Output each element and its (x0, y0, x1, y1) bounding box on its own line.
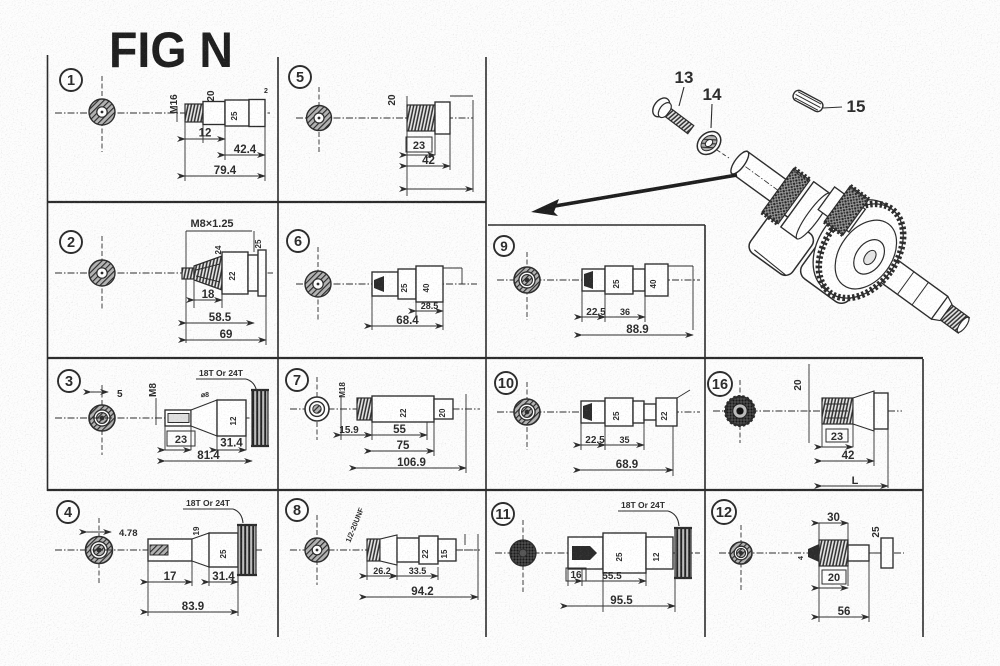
svg-text:36: 36 (620, 307, 630, 317)
svg-text:11: 11 (495, 507, 510, 523)
svg-text:31.4: 31.4 (220, 438, 243, 450)
svg-text:42: 42 (422, 155, 435, 167)
svg-text:25: 25 (615, 552, 624, 561)
svg-text:25: 25 (230, 111, 239, 120)
svg-text:31.4: 31.4 (212, 571, 235, 583)
svg-text:4: 4 (64, 505, 72, 521)
svg-text:13: 13 (675, 68, 694, 87)
svg-text:25: 25 (612, 279, 621, 288)
svg-text:6: 6 (294, 234, 302, 250)
svg-text:22.5: 22.5 (585, 435, 605, 446)
svg-text:28.5: 28.5 (421, 301, 439, 311)
svg-text:42.4: 42.4 (234, 144, 257, 156)
svg-text:1: 1 (67, 73, 75, 89)
svg-text:68.4: 68.4 (396, 315, 419, 327)
svg-text:16: 16 (712, 377, 728, 393)
svg-text:68.9: 68.9 (616, 459, 638, 471)
svg-text:35: 35 (619, 435, 629, 445)
svg-text:69: 69 (220, 329, 233, 341)
svg-text:9: 9 (500, 239, 508, 254)
svg-text:M16: M16 (169, 94, 180, 114)
svg-text:10: 10 (498, 376, 514, 392)
svg-text:26.2: 26.2 (373, 566, 391, 576)
svg-text:5: 5 (117, 389, 123, 400)
svg-text:15: 15 (440, 549, 449, 558)
svg-text:19: 19 (192, 526, 201, 535)
svg-text:⌀8: ⌀8 (201, 392, 209, 399)
svg-text:2: 2 (264, 88, 268, 95)
svg-text:17: 17 (164, 571, 177, 583)
svg-text:8: 8 (293, 503, 301, 519)
svg-text:55: 55 (393, 424, 406, 436)
svg-text:22: 22 (660, 411, 669, 420)
svg-text:25: 25 (254, 239, 263, 248)
svg-text:25: 25 (219, 549, 228, 558)
svg-text:25: 25 (871, 526, 882, 538)
svg-text:12: 12 (652, 552, 661, 561)
svg-text:12: 12 (229, 416, 238, 425)
svg-text:4.78: 4.78 (119, 528, 138, 539)
svg-text:5: 5 (296, 70, 304, 86)
svg-text:23: 23 (175, 434, 187, 446)
svg-text:FIG N: FIG N (109, 22, 233, 78)
svg-text:12: 12 (199, 128, 212, 140)
svg-text:55.5: 55.5 (602, 571, 622, 582)
svg-text:15.9: 15.9 (339, 425, 359, 436)
svg-text:20: 20 (438, 408, 447, 417)
svg-text:22: 22 (421, 549, 430, 558)
svg-text:24: 24 (214, 245, 223, 254)
svg-text:30: 30 (827, 512, 840, 524)
svg-text:83.9: 83.9 (182, 601, 204, 613)
svg-text:18T Or 24T: 18T Or 24T (621, 500, 666, 510)
svg-text:15: 15 (847, 97, 866, 116)
svg-text:16: 16 (570, 570, 582, 581)
svg-text:3: 3 (65, 374, 73, 390)
svg-text:33.5: 33.5 (409, 566, 427, 576)
svg-text:22.5: 22.5 (586, 307, 606, 318)
svg-text:42: 42 (842, 450, 855, 462)
svg-text:88.9: 88.9 (626, 324, 648, 336)
svg-text:25: 25 (612, 411, 621, 420)
svg-text:18T Or 24T: 18T Or 24T (186, 498, 231, 508)
svg-text:20: 20 (206, 90, 217, 102)
svg-text:22: 22 (399, 408, 408, 417)
svg-text:95.5: 95.5 (610, 595, 633, 607)
svg-text:94.2: 94.2 (411, 586, 433, 598)
svg-text:2: 2 (67, 235, 75, 251)
svg-text:75: 75 (397, 440, 410, 452)
svg-text:M8: M8 (148, 383, 159, 397)
svg-text:79.4: 79.4 (214, 165, 237, 177)
svg-text:20: 20 (828, 572, 840, 584)
svg-text:23: 23 (831, 431, 843, 443)
svg-text:25: 25 (400, 283, 409, 292)
svg-text:14: 14 (703, 85, 722, 104)
svg-text:18T Or 24T: 18T Or 24T (199, 368, 244, 378)
svg-text:81.4: 81.4 (197, 450, 220, 462)
svg-text:40: 40 (422, 283, 431, 292)
svg-text:22: 22 (228, 271, 237, 280)
svg-text:4: 4 (798, 556, 805, 560)
svg-text:23: 23 (413, 140, 425, 152)
svg-text:20: 20 (387, 94, 398, 106)
svg-text:58.5: 58.5 (209, 312, 232, 324)
svg-text:20: 20 (793, 379, 804, 391)
svg-text:7: 7 (293, 373, 301, 389)
svg-text:L: L (852, 475, 859, 487)
svg-text:12: 12 (716, 505, 732, 521)
svg-text:40: 40 (649, 279, 658, 288)
svg-text:106.9: 106.9 (397, 457, 426, 469)
svg-text:56: 56 (838, 606, 851, 618)
svg-text:M8×1.25: M8×1.25 (190, 218, 233, 230)
svg-text:M18: M18 (338, 382, 347, 398)
svg-text:18: 18 (202, 289, 215, 301)
